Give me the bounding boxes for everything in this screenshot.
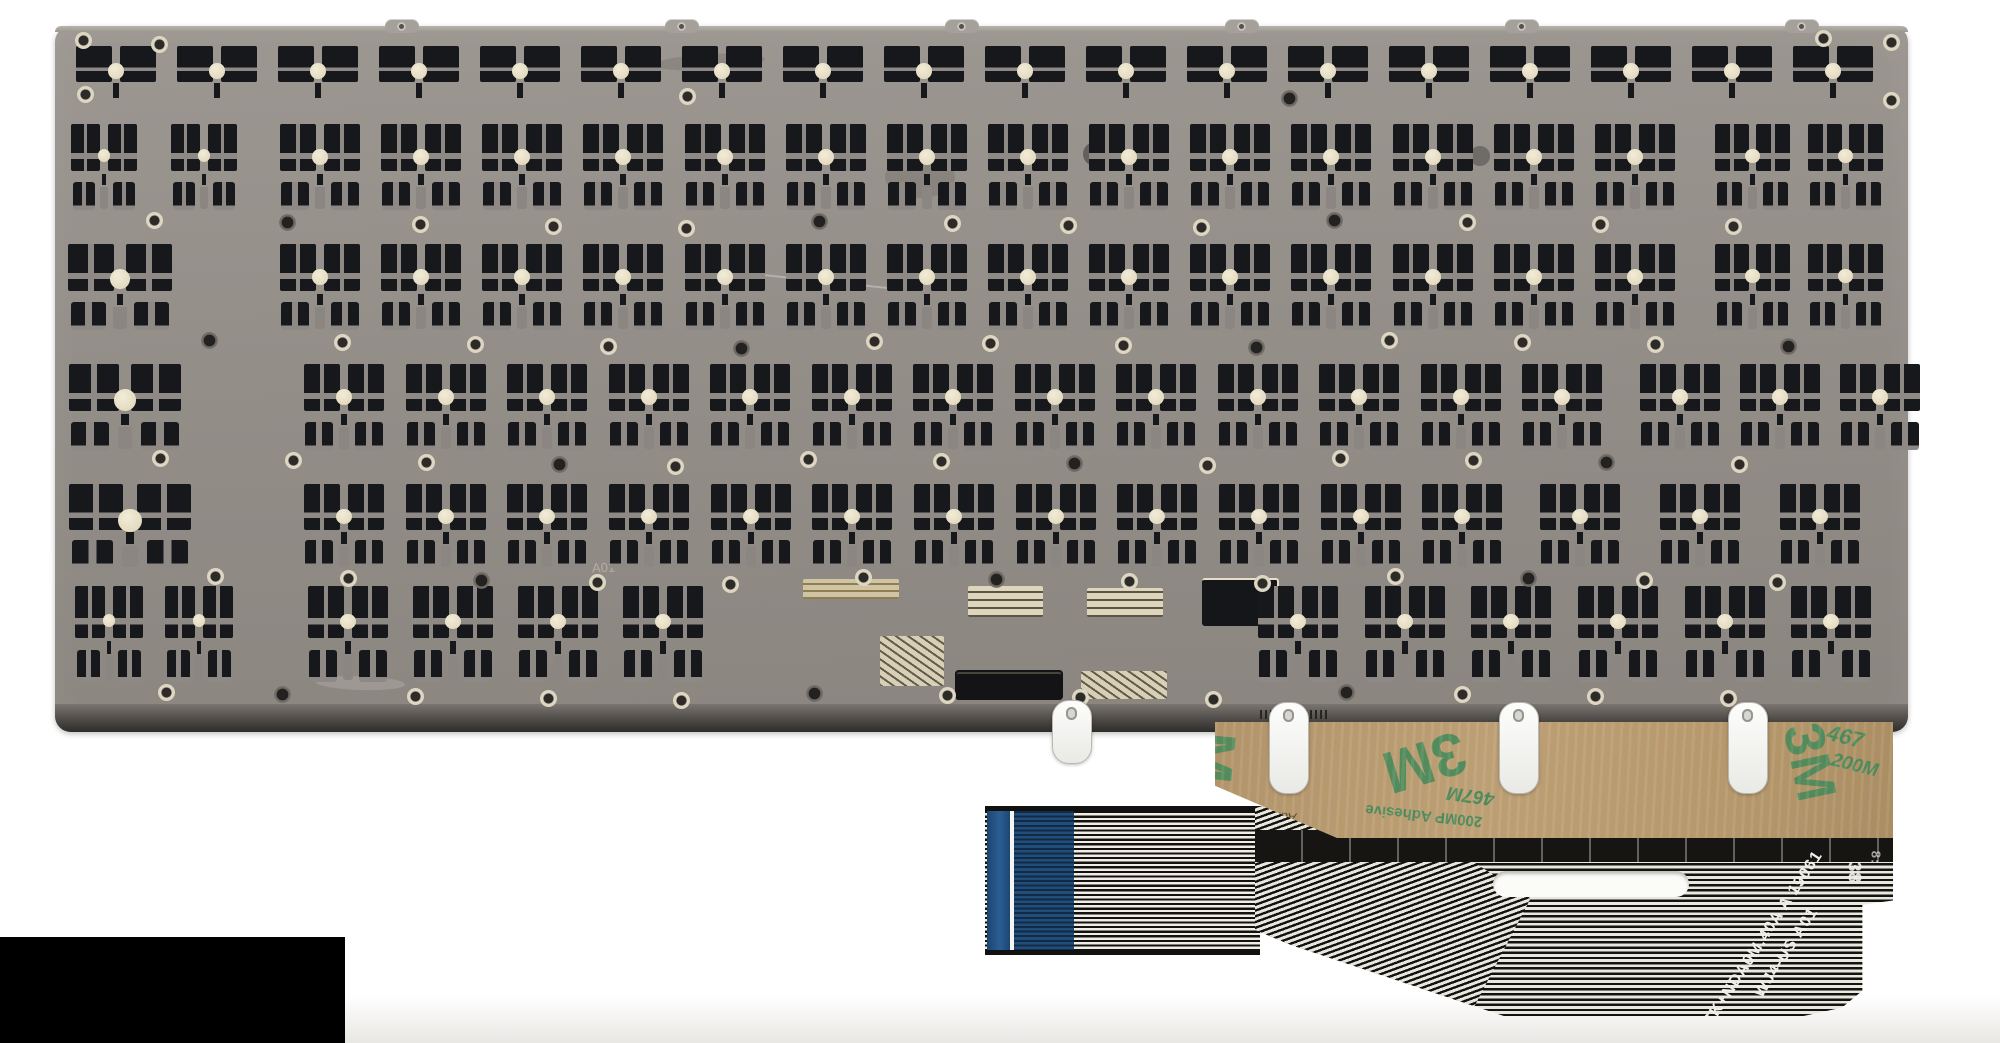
clip-slot	[856, 364, 892, 411]
clip-slit	[1843, 294, 1848, 306]
clip-foot	[660, 422, 688, 451]
clip-slit	[317, 294, 322, 306]
clip-slit	[1328, 294, 1333, 306]
screw-hole	[1780, 338, 1797, 355]
clip-slit	[1722, 641, 1727, 654]
clip-post	[448, 656, 458, 680]
clip-post	[1051, 546, 1061, 567]
clip-foot	[1191, 302, 1219, 331]
clip-post	[1826, 656, 1836, 680]
clip-slit	[1154, 532, 1159, 543]
clip-slit	[555, 641, 560, 654]
clip-foot	[1292, 302, 1320, 331]
clip-foot	[1596, 302, 1624, 331]
clip-slit	[117, 294, 124, 306]
clip-slot	[1685, 586, 1721, 638]
clip-slot	[856, 484, 892, 530]
clip-slot	[1849, 244, 1882, 291]
key-clip-module	[376, 46, 462, 104]
clip-foot	[71, 422, 109, 451]
clip-slit	[1227, 294, 1232, 306]
clip-foot	[72, 540, 114, 568]
clip-foot	[1763, 182, 1788, 211]
key-clip-module	[277, 244, 363, 334]
clip-slot	[1756, 124, 1789, 171]
clip-foot	[208, 650, 231, 682]
membrane-dot	[1149, 509, 1164, 524]
clip-foot	[1522, 650, 1550, 682]
membrane-dot	[919, 269, 934, 284]
membrane-dot	[945, 389, 960, 404]
key-clip-module	[1806, 124, 1885, 214]
clip-slit	[921, 83, 926, 98]
clip-slit	[1328, 174, 1333, 186]
membrane-dot	[108, 63, 123, 78]
clip-foot	[1741, 422, 1769, 451]
clip-slot	[988, 244, 1024, 291]
clip-post	[416, 307, 426, 329]
clip-foot	[73, 182, 95, 211]
clip-slot	[1784, 364, 1820, 411]
clip-foot	[1472, 650, 1500, 682]
screw-hole	[678, 220, 695, 237]
screw-hole	[800, 451, 817, 468]
clip-slot	[280, 124, 316, 171]
clip-post	[745, 427, 755, 449]
clip-slit	[416, 83, 421, 98]
clip-slot	[1161, 484, 1197, 530]
cable-stamp: 38	[1844, 861, 1865, 883]
clip-foot	[1591, 540, 1619, 568]
tape-3m-logo: 3M	[1774, 722, 1845, 806]
clip-slit	[1527, 83, 1532, 98]
clip-foot	[1269, 422, 1297, 451]
tape-adhesive-label: 200MP Adhesive	[1365, 802, 1483, 829]
clip-post	[746, 546, 756, 567]
clip-slit	[950, 414, 955, 426]
clip-foot	[382, 302, 410, 331]
clip-foot	[558, 540, 586, 568]
clip-slot	[729, 244, 765, 291]
clip-post	[118, 427, 132, 449]
clip-slot	[381, 244, 417, 291]
screw-hole	[679, 88, 696, 105]
clip-foot	[1541, 540, 1569, 568]
clip-slot	[450, 364, 486, 411]
clip-slot	[1566, 364, 1602, 411]
clip-foot	[1241, 182, 1269, 211]
clip-post	[1748, 187, 1757, 209]
membrane-dot	[1118, 63, 1133, 78]
cable-stamp-dots: 8:	[1868, 851, 1883, 865]
mounting-tab-hole	[397, 22, 406, 31]
membrane-dot	[615, 149, 630, 164]
clip-slot	[562, 586, 598, 638]
clip-post	[1841, 187, 1850, 209]
clip-slit	[214, 83, 219, 98]
membrane-dot	[1812, 509, 1827, 524]
membrane-dot	[1453, 389, 1468, 404]
clip-slot	[1089, 124, 1125, 171]
clip-slot	[406, 364, 442, 411]
membrane-dot	[1610, 614, 1625, 629]
key-clip-module	[1362, 586, 1448, 686]
key-clip-module	[580, 124, 666, 214]
key-clip-module	[1012, 364, 1098, 454]
clip-slot	[165, 586, 195, 638]
clip-slot	[131, 364, 181, 411]
key-clip-module	[275, 46, 361, 104]
clip-slot	[423, 46, 459, 82]
clip-foot	[355, 540, 383, 568]
screw-hole	[1465, 452, 1482, 469]
key-clip-module	[985, 124, 1071, 214]
spacebar-slot	[955, 670, 1063, 700]
clip-slot	[1591, 46, 1627, 82]
screw-hole	[551, 456, 568, 473]
clip-slot	[928, 46, 964, 82]
clip-slot	[1319, 364, 1355, 411]
clip-foot	[938, 302, 966, 331]
clip-slot	[1534, 46, 1570, 82]
clip-slot	[1117, 484, 1153, 530]
clip-post	[644, 427, 654, 449]
membrane-dot	[114, 389, 136, 411]
clip-slot	[1422, 484, 1458, 530]
clip-slit	[341, 532, 346, 543]
membrane-dot	[1825, 63, 1840, 78]
clip-slit	[849, 532, 854, 543]
screw-hole	[733, 340, 750, 357]
membrane-dot	[550, 614, 565, 629]
clip-slot	[1808, 244, 1841, 291]
clip-foot	[914, 422, 942, 451]
clip-slot	[581, 46, 617, 82]
membrane-dot	[1838, 149, 1852, 163]
membrane-dot	[1323, 149, 1338, 164]
mounting-tab	[1785, 19, 1819, 33]
clip-slot	[278, 46, 314, 82]
clip-slot	[1494, 244, 1530, 291]
clip-foot	[359, 650, 387, 682]
key-clip-module	[1316, 364, 1402, 454]
clip-slot	[625, 46, 661, 82]
clip-foot	[1067, 540, 1095, 568]
screw-hole	[1281, 90, 1298, 107]
membrane-window	[1087, 588, 1163, 617]
screw-hole	[722, 576, 739, 593]
screw-hole	[1592, 216, 1609, 233]
clip-post	[441, 546, 451, 567]
membrane-dot	[1047, 389, 1062, 404]
clip-slot	[1029, 46, 1065, 82]
clip-slit	[1430, 294, 1435, 306]
clip-foot	[1342, 302, 1370, 331]
clip-slot	[413, 586, 449, 638]
clip-slot	[1437, 124, 1473, 171]
adhesive-strip-3m: M 3M 3M 467 200M 467M 200MP Adhesive Adh…	[1215, 722, 1893, 838]
clip-slit	[849, 414, 854, 426]
clip-foot	[1017, 540, 1045, 568]
clip-post	[113, 307, 126, 329]
clip-slot	[985, 46, 1021, 82]
membrane-dot	[1745, 149, 1759, 163]
clip-slot	[379, 46, 415, 82]
mounting-tab	[1505, 19, 1539, 33]
membrane-dot	[1320, 63, 1335, 78]
clip-slit	[443, 414, 448, 426]
clip-slit	[748, 532, 753, 543]
clip-slit	[1750, 174, 1755, 186]
clip-slot	[1335, 124, 1371, 171]
screw-hole	[152, 450, 169, 467]
screw-hole	[418, 454, 435, 471]
membrane-dot	[613, 63, 628, 78]
key-clip-module	[163, 586, 235, 686]
clip-slot	[322, 46, 358, 82]
clip-slot	[1465, 364, 1501, 411]
clip-slot	[1262, 364, 1298, 411]
clip-slit	[1877, 414, 1882, 426]
clip-slit	[345, 641, 350, 654]
clip-slot	[324, 244, 360, 291]
clip-slot	[304, 364, 340, 411]
screw-hole	[1060, 217, 1077, 234]
clip-foot	[1810, 182, 1835, 211]
membrane-dot	[209, 63, 224, 78]
membrane-window	[803, 579, 899, 599]
clip-foot	[1117, 422, 1145, 451]
clip-slot	[1640, 364, 1676, 411]
screw-hole	[1883, 92, 1900, 109]
clip-slot	[1187, 46, 1223, 82]
key-clip-module	[504, 364, 590, 454]
clip-slit	[315, 83, 320, 98]
screw-hole	[1731, 456, 1748, 473]
key-clip-module	[479, 124, 565, 214]
membrane-dot	[717, 269, 732, 284]
key-clip-module	[1318, 484, 1404, 572]
cable-slot-cutout	[1493, 871, 1689, 897]
plate-hook-tab	[1052, 700, 1092, 764]
screw-hole	[334, 334, 351, 351]
key-clip-module	[1184, 46, 1270, 104]
clip-slit	[620, 174, 625, 186]
membrane-dot	[655, 614, 670, 629]
clip-post	[658, 656, 668, 680]
clip-slot	[1635, 46, 1671, 82]
key-clip-module	[1837, 364, 1923, 454]
screw-hole	[274, 686, 291, 703]
clip-slit	[418, 174, 423, 186]
clip-foot	[1545, 182, 1573, 211]
clip-slot	[203, 586, 233, 638]
clip-slot	[583, 124, 619, 171]
clip-post	[1023, 307, 1033, 329]
clip-slot	[304, 484, 340, 530]
clip-foot	[1322, 540, 1350, 568]
clip-slot	[1837, 46, 1873, 82]
clip-slit	[820, 83, 825, 98]
clip-slot	[75, 586, 105, 638]
screw-hole	[1387, 568, 1404, 585]
clip-post	[1529, 307, 1539, 329]
clip-post	[720, 307, 730, 329]
clip-foot	[964, 422, 992, 451]
clip-slit	[418, 294, 423, 306]
screw-hole	[158, 684, 175, 701]
clip-post	[339, 546, 349, 567]
clip-post	[1775, 427, 1785, 449]
clip-slot	[1437, 244, 1473, 291]
key-clip-module	[1737, 364, 1823, 454]
key-clip-module	[809, 364, 895, 454]
tape-code-467: 467	[1825, 722, 1866, 752]
clip-slit	[646, 414, 651, 426]
clip-slot	[609, 484, 645, 530]
clip-slot	[69, 364, 119, 411]
key-clip-module	[1390, 244, 1476, 334]
key-clip-module	[1592, 244, 1678, 334]
clip-slit	[1628, 83, 1633, 98]
clip-slot	[1160, 364, 1196, 411]
clip-foot	[1241, 302, 1269, 331]
clip-post	[1354, 427, 1364, 449]
clip-foot	[837, 302, 865, 331]
clip-foot	[624, 650, 652, 682]
clip-post	[644, 546, 654, 567]
screw-hole	[467, 336, 484, 353]
key-clip-module	[65, 364, 185, 454]
key-clip-module	[504, 484, 590, 572]
clip-slot	[352, 586, 388, 638]
clip-slit	[1256, 532, 1261, 543]
membrane-dot	[919, 149, 934, 164]
membrane-dot	[336, 389, 351, 404]
clip-slot	[524, 46, 560, 82]
screw-hole	[77, 86, 94, 103]
mounting-tab-hole	[1797, 22, 1806, 31]
screw-hole	[473, 572, 490, 589]
clip-slot	[1522, 364, 1558, 411]
clip-foot	[938, 182, 966, 211]
membrane-dot	[1219, 63, 1234, 78]
clip-foot	[1842, 650, 1870, 682]
screw-hole	[1205, 691, 1222, 708]
clip-slot	[1218, 364, 1254, 411]
screw-hole	[1514, 334, 1531, 351]
screw-hole	[1647, 336, 1664, 353]
clip-foot	[1167, 422, 1195, 451]
clip-slit	[1559, 414, 1564, 426]
screw-hole	[855, 569, 872, 586]
key-clip-module	[1537, 484, 1623, 572]
clip-slot	[381, 124, 417, 171]
key-clip-module	[578, 46, 664, 104]
key-clip-module	[477, 46, 563, 104]
clip-foot	[610, 422, 638, 451]
membrane-dot	[118, 509, 141, 532]
key-clip-module	[1637, 364, 1723, 454]
clip-slot	[653, 364, 689, 411]
clip-slot	[685, 124, 721, 171]
clip-foot	[1370, 422, 1398, 451]
clip-slit	[1843, 174, 1848, 186]
clip-foot	[457, 540, 485, 568]
clip-post	[343, 656, 353, 680]
clip-foot	[1140, 302, 1168, 331]
screw-hole	[1769, 574, 1786, 591]
clip-foot	[1039, 302, 1067, 331]
clip-slit	[1358, 532, 1363, 543]
clip-foot	[1473, 540, 1501, 568]
clip-post	[1630, 307, 1640, 329]
clip-post	[1613, 656, 1623, 680]
corner-screw-hole	[151, 36, 168, 53]
key-clip-module	[410, 586, 496, 686]
screw-hole	[201, 332, 218, 349]
clip-slot	[450, 484, 486, 530]
clip-slot	[221, 46, 257, 82]
clip-post	[1326, 187, 1336, 209]
clip-post	[517, 307, 527, 329]
membrane-dot	[539, 389, 554, 404]
plate-hook-tab	[1269, 702, 1309, 794]
clip-foot	[674, 650, 702, 682]
membrane-dot	[1290, 614, 1305, 629]
clip-slit	[102, 174, 106, 186]
clip-foot	[213, 182, 235, 211]
clip-foot	[1422, 422, 1450, 451]
clip-slot	[667, 586, 703, 638]
clip-slit	[722, 294, 727, 306]
clip-slot	[1639, 244, 1675, 291]
membrane-dot	[946, 509, 961, 524]
clip-slit	[107, 641, 111, 654]
clip-slot	[480, 46, 516, 82]
clip-foot	[331, 302, 359, 331]
clip-slit	[450, 641, 455, 654]
clip-slot	[1835, 586, 1871, 638]
clip-slot	[1466, 484, 1502, 530]
screw-hole	[806, 685, 823, 702]
clip-foot	[837, 182, 865, 211]
membrane-dot	[818, 149, 833, 164]
clip-foot	[309, 650, 337, 682]
clip-slot	[1409, 586, 1445, 638]
screw-hole	[207, 568, 224, 585]
clip-slit	[1750, 294, 1755, 306]
clip-slit	[823, 294, 828, 306]
clip-slit	[1224, 83, 1229, 98]
clip-slot	[1471, 586, 1507, 638]
clip-foot	[118, 650, 141, 682]
clip-foot	[113, 182, 135, 211]
clip-foot	[1118, 540, 1146, 568]
membrane-dot	[1397, 614, 1412, 629]
membrane-dot	[844, 389, 859, 404]
screw-hole	[412, 216, 429, 233]
clip-foot	[483, 182, 511, 211]
clip-slot	[1791, 586, 1827, 638]
key-clip-module	[708, 484, 794, 572]
clip-foot	[1629, 650, 1657, 682]
clip-slot	[609, 364, 645, 411]
clip-foot	[1394, 302, 1422, 331]
clip-foot	[610, 540, 638, 568]
clip-slit	[618, 83, 623, 98]
clip-foot	[173, 182, 195, 211]
